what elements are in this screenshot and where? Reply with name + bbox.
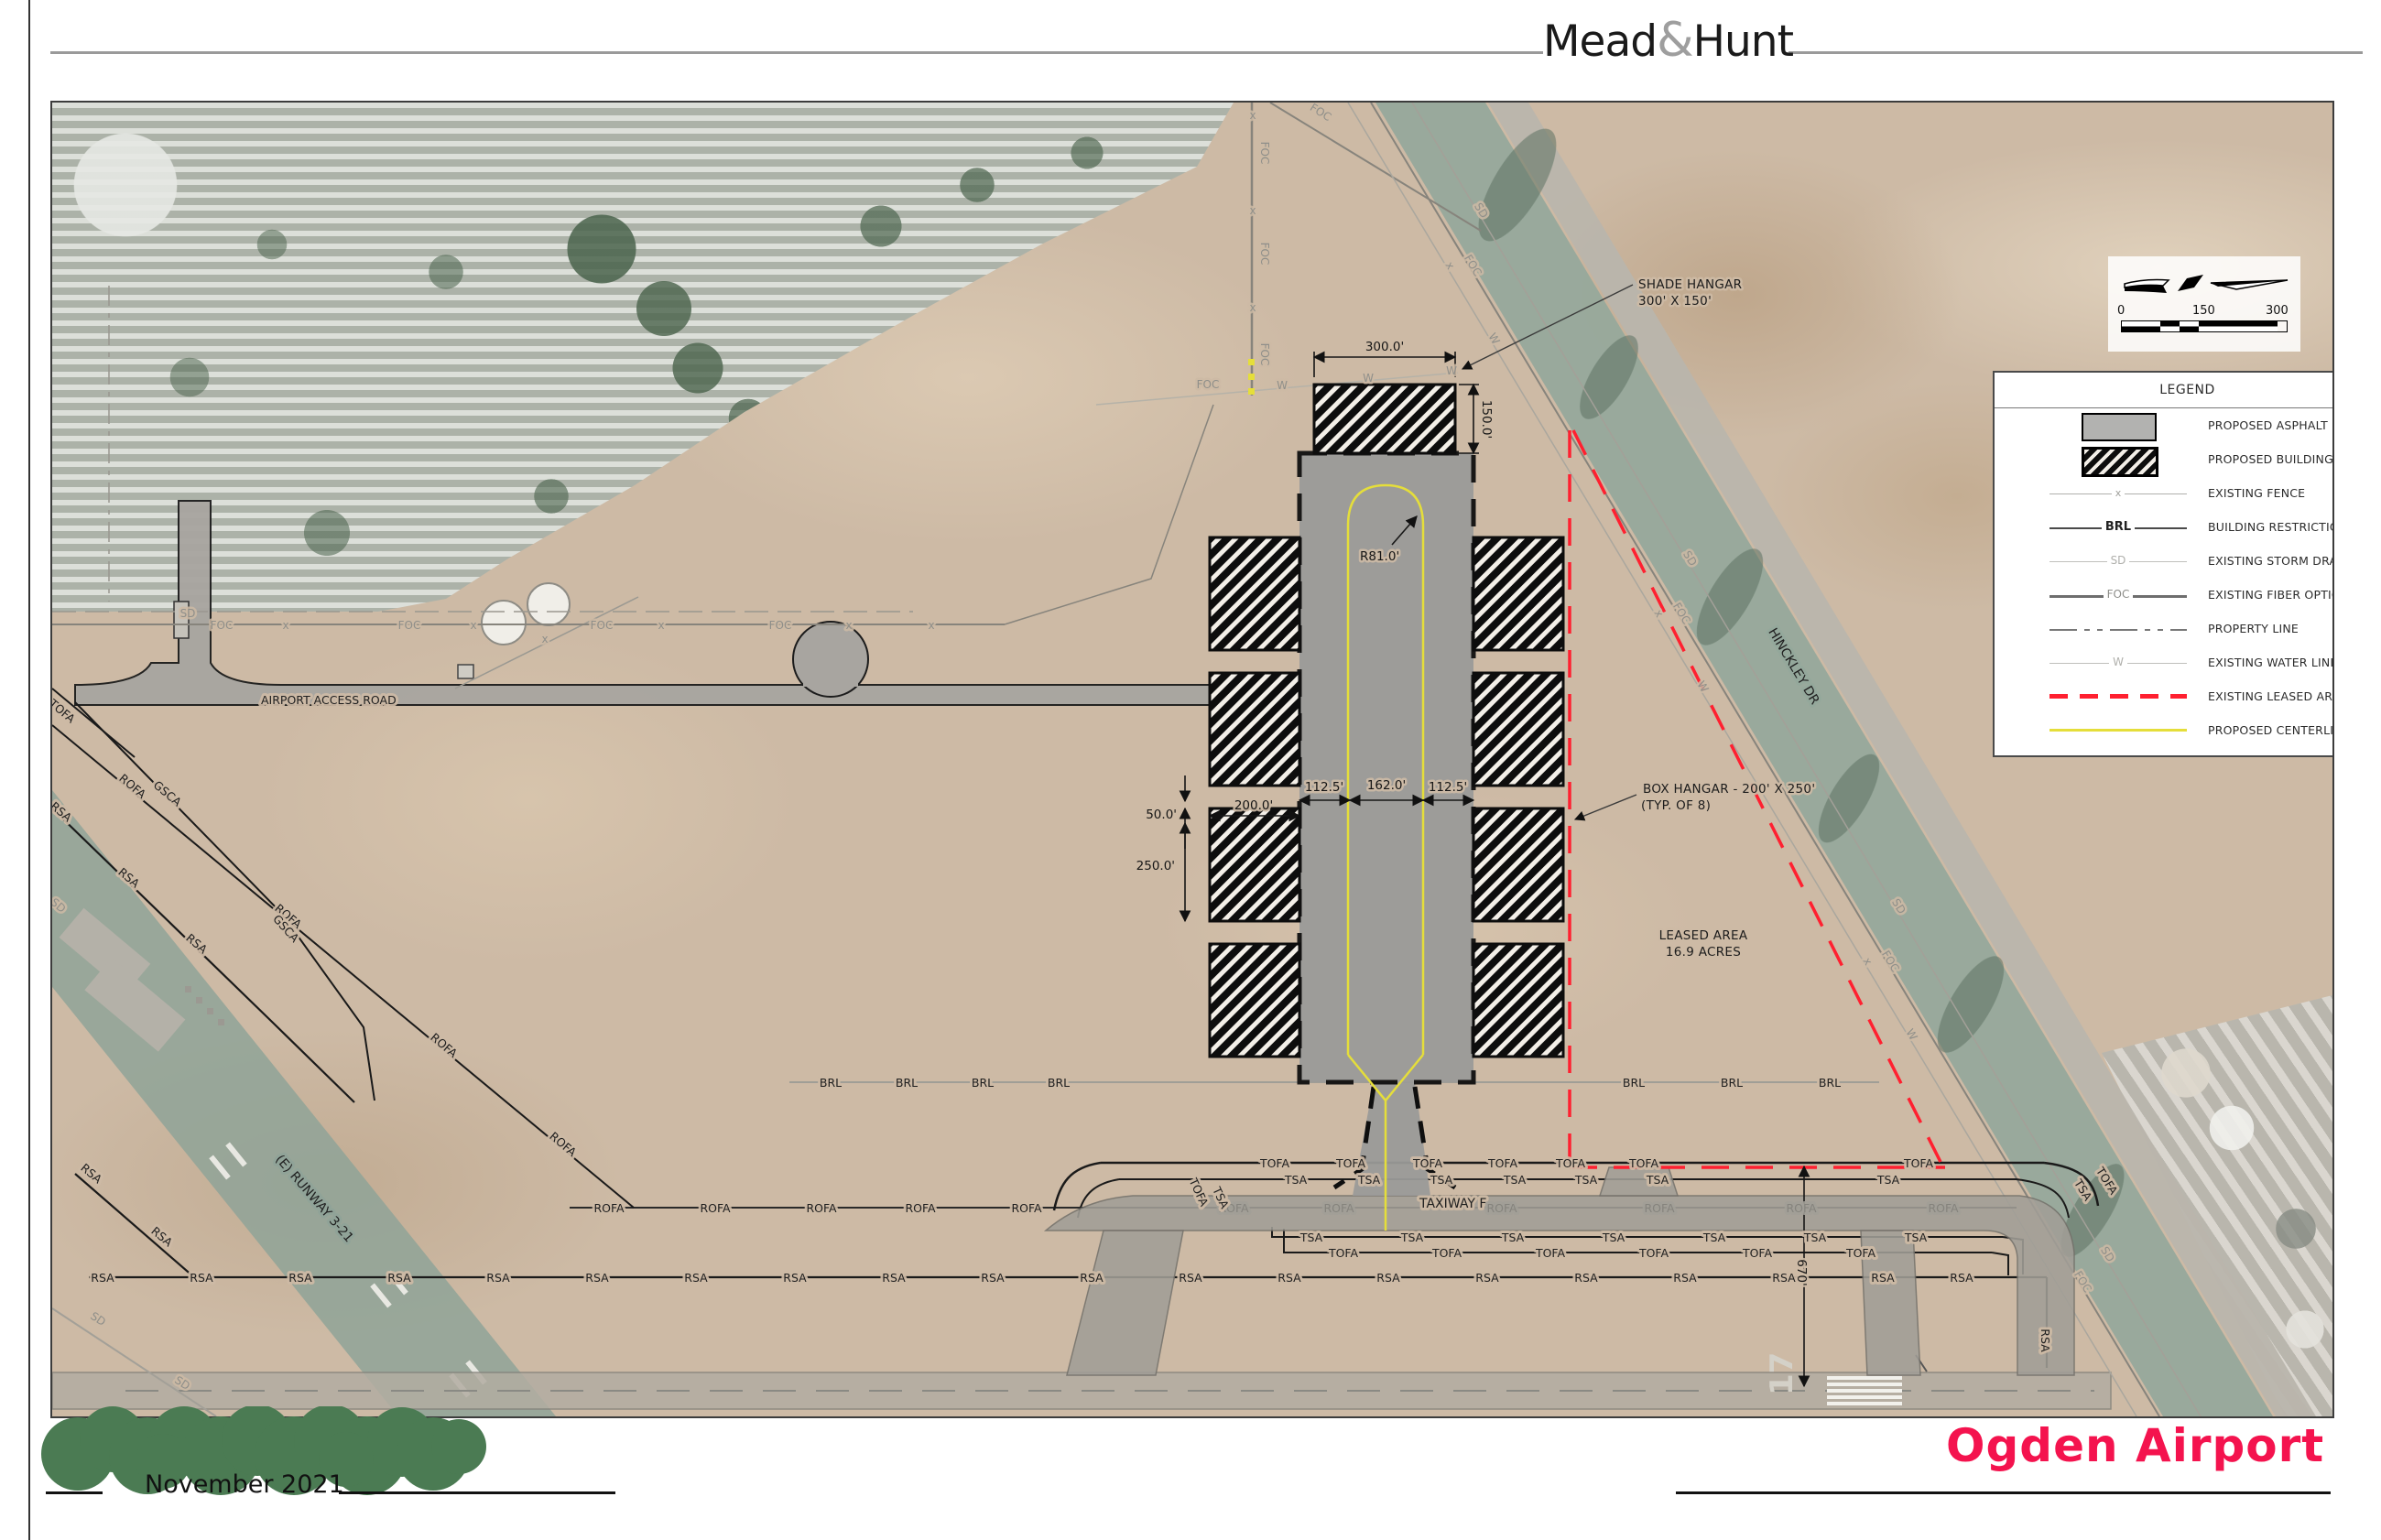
line-label-rofa: ROFA: [116, 771, 148, 801]
line-label-x: x: [1443, 259, 1458, 271]
line-label-w: W: [1485, 331, 1502, 346]
line-label-rsa: RSA: [288, 1271, 312, 1285]
line-label-rsa: RSA: [190, 1271, 213, 1285]
scale-bar: [2121, 320, 2288, 332]
line-label-rsa: RSA: [91, 1271, 114, 1285]
legend-item-label: EXISTING FENCE: [2208, 476, 2305, 510]
line-label-foc: FOC: [1258, 343, 1271, 366]
leased-area-label: LEASED AREA 16.9 ACRES: [1659, 928, 1748, 960]
line-label-tofa: TOFA: [1555, 1156, 1586, 1170]
line-label-rsa: RSA: [1179, 1271, 1202, 1285]
centerline-marking-line: [2049, 713, 2187, 747]
legend-item-label: PROPOSED CENTERLINE MARKING: [2208, 713, 2334, 747]
line-label-rofa: ROFA: [806, 1201, 837, 1215]
svg-text:300' X 150': 300' X 150': [1638, 294, 1712, 309]
legend-item-label: EXISTING STORM DRAIN: [2208, 544, 2334, 578]
line-label-rofa: ROFA: [1786, 1201, 1817, 1215]
apron-proposed-asphalt: [1299, 453, 1473, 1082]
scale-0: 0: [2117, 304, 2125, 318]
footer-rule-left: [46, 1491, 103, 1494]
svg-text:SHADE HANGAR: SHADE HANGAR: [1638, 277, 1742, 292]
line-label-tofa: TOFA: [1259, 1156, 1290, 1170]
runway-17-number: 17: [1764, 1352, 1800, 1395]
line-label-x: x: [470, 619, 476, 632]
legend-title: LEGEND: [1995, 373, 2334, 408]
line-label-x: x: [1249, 204, 1256, 217]
legend-item-label: EXISTING WATER LINE: [2208, 645, 2334, 679]
line-label-rsa: RSA: [882, 1271, 906, 1285]
plan-linework: 17 AIRPORT ACCESS ROAD: [52, 103, 2332, 1416]
line-label-tofa: TOFA: [1328, 1246, 1359, 1260]
line-label-rofa: ROFA: [1486, 1201, 1517, 1215]
brand-ampersand: &: [1657, 13, 1693, 68]
line-label-rsa: RSA: [148, 1224, 175, 1250]
line-label-tsa: TSA: [1400, 1231, 1424, 1244]
line-label-brl: BRL: [1819, 1076, 1841, 1090]
brand-right: Hunt: [1693, 16, 1793, 67]
line-label-x: x: [282, 619, 288, 632]
legend-item-label: EXISTING FIBER OPTIC CABLE: [2208, 578, 2334, 612]
dim-hangar-width: 200.0': [1234, 798, 1273, 813]
proposed-asphalt-swatch: [2049, 408, 2187, 442]
line-label-w: W: [1277, 379, 1288, 392]
taxiway-f-pavement: [1046, 1196, 2074, 1375]
legend-item-water: W EXISTING WATER LINE: [1995, 645, 2334, 679]
line-label-rofa: ROFA: [1011, 1201, 1042, 1215]
client-logo-green: [35, 1406, 548, 1516]
line-label-tsa: TSA: [1646, 1173, 1669, 1187]
north-arrow-icon: [2108, 258, 2300, 304]
svg-text:BOX HANGAR - 200' X 250': BOX HANGAR - 200' X 250': [1643, 782, 1815, 797]
sheet-border-line: [28, 0, 30, 1540]
line-label-tofa: TOFA: [1903, 1156, 1934, 1170]
small-structure: [458, 665, 473, 678]
line-label-w: W: [1903, 1026, 1919, 1042]
line-label-rsa: RSA: [981, 1271, 1005, 1285]
line-label-tofa: TOFA: [1742, 1246, 1773, 1260]
line-label-tsa: TSA: [1357, 1173, 1381, 1187]
line-label-rofa: ROFA: [1928, 1201, 1959, 1215]
line-label-tsa: TSA: [1702, 1231, 1726, 1244]
dim-shade-depth: 150.0': [1479, 400, 1494, 439]
line-label-tsa: TSA: [1602, 1231, 1625, 1244]
footer-rule-right: [1676, 1491, 2331, 1494]
property-line: [2049, 612, 2187, 645]
line-label-foc: FOC: [1308, 103, 1333, 124]
line-label-tsa: TSA: [1803, 1231, 1827, 1244]
dim-hangar-depth: 250.0': [1136, 859, 1175, 873]
line-label-x: x: [541, 633, 548, 645]
leased-area-line: [2049, 679, 2187, 713]
plan-sheet: Mead&Hunt: [0, 0, 2381, 1540]
legend-item-label: PROPERTY LINE: [2208, 612, 2299, 645]
scale-300: 300: [2266, 304, 2289, 318]
line-label-tofa: TOFA: [1412, 1156, 1443, 1170]
svg-text:LEASED AREA: LEASED AREA: [1659, 928, 1748, 943]
line-label-rsa: RSA: [486, 1271, 510, 1285]
existing-fence-line: x: [2049, 476, 2187, 510]
svg-text:16.9 ACRES: 16.9 ACRES: [1666, 945, 1741, 960]
footer-rule-mid: [339, 1491, 615, 1494]
line-label-x: x: [928, 619, 934, 632]
header-rule: [50, 51, 2363, 54]
dim-shade-width: 300.0': [1365, 340, 1404, 354]
taxiway-f-label: TAXIWAY F: [1419, 1197, 1486, 1211]
svg-text:(TYP. OF 8): (TYP. OF 8): [1641, 798, 1711, 813]
legend-item-label: PROPOSED BUILDING: [2208, 442, 2333, 476]
legend-item-brl: BRL BUILDING RESTRICTION LINE (60'): [1995, 510, 2334, 544]
water-line: W: [2049, 645, 2187, 679]
line-label-foc: FOC: [1258, 243, 1271, 266]
legend-rows: PROPOSED ASPHALT PROPOSED BUILDINGx EXIS…: [1995, 408, 2334, 747]
line-label-rsa: RSA: [783, 1271, 807, 1285]
dim-apron-left: 112.5': [1305, 780, 1343, 795]
line-label-x: x: [1652, 607, 1667, 619]
line-label-rsa: RSA: [1772, 1271, 1796, 1285]
legend-item-asphalt: PROPOSED ASPHALT: [1995, 408, 2334, 442]
site-plan-map: 17 AIRPORT ACCESS ROAD: [50, 101, 2334, 1418]
line-label-x: x: [1861, 955, 1875, 967]
logo-blob-circle: [431, 1419, 486, 1474]
legend-item-fence: x EXISTING FENCE: [1995, 476, 2334, 510]
dim-runway-offset: 670': [1794, 1259, 1809, 1285]
line-label-w: W: [1363, 372, 1374, 385]
line-label-tofa: TOFA: [1487, 1156, 1518, 1170]
line-label-foc: FOC: [398, 619, 421, 632]
legend-item-foc: FOC EXISTING FIBER OPTIC CABLE: [1995, 578, 2334, 612]
line-label-brl: BRL: [1048, 1076, 1070, 1090]
line-label-w: W: [1694, 678, 1711, 694]
line-label-tsa: TSA: [1904, 1231, 1928, 1244]
line-label-rsa: RSA: [1871, 1271, 1895, 1285]
line-label-sd: SD: [88, 1309, 108, 1329]
line-label-brl: BRL: [820, 1076, 842, 1090]
line-label-tsa: TSA: [1299, 1231, 1323, 1244]
line-label-tsa: TSA: [1501, 1231, 1525, 1244]
line-label-tofa: TOFA: [1845, 1246, 1876, 1260]
line-label-foc: FOC: [211, 619, 234, 632]
line-label-tsa: TSA: [1430, 1173, 1453, 1187]
line-label-rofa: ROFA: [1644, 1201, 1675, 1215]
line-label-tofa: TOFA: [1431, 1246, 1462, 1260]
legend-item-leased: EXISTING LEASED AREA: [1995, 679, 2334, 713]
line-label-brl: BRL: [972, 1076, 994, 1090]
line-label-rsa: RSA: [387, 1271, 411, 1285]
legend-item-centerline: PROPOSED CENTERLINE MARKING: [1995, 713, 2334, 747]
legend-item-label: PROPOSED ASPHALT: [2208, 408, 2328, 442]
line-label-rsa: RSA: [585, 1271, 609, 1285]
line-label-x: x: [845, 619, 852, 632]
line-label-rsa: RSA: [1574, 1271, 1598, 1285]
dim-turn-radius: R81.0': [1360, 549, 1399, 564]
line-label-rsa: RSA: [1376, 1271, 1400, 1285]
legend-item-property: PROPERTY LINE: [1995, 612, 2334, 645]
line-label-gsca: GSCA: [151, 778, 185, 809]
fiber-optic-line: FOC: [2049, 578, 2187, 612]
line-label-tsa: TSA: [1503, 1173, 1527, 1187]
line-label-tofa: TOFA: [1535, 1246, 1566, 1260]
legend-item-label: BUILDING RESTRICTION LINE (60'): [2208, 510, 2334, 544]
proposed-building-swatch: [2049, 442, 2187, 476]
dim-hangar-gap: 50.0': [1146, 808, 1177, 822]
line-label-brl: BRL: [1721, 1076, 1743, 1090]
line-label-rsa: RSA: [1277, 1271, 1301, 1285]
brand-left: Mead: [1543, 16, 1657, 67]
line-label-sd: SD: [180, 607, 196, 620]
line-label-rsa: RSA: [78, 1161, 104, 1187]
scale-bar-block: 0 150 300: [2108, 256, 2300, 352]
line-label-rsa: RSA: [1475, 1271, 1499, 1285]
survey-markers: [1248, 359, 1255, 395]
line-label-tsa: TSA: [1574, 1173, 1598, 1187]
line-label-rsa: RSA: [183, 931, 210, 957]
shade-hangar-building: [1314, 385, 1455, 453]
line-label-foc: FOC: [1258, 142, 1271, 165]
mead-hunt-logo: Mead&Hunt: [1543, 13, 1788, 71]
scale-150: 150: [2192, 304, 2215, 318]
line-label-tofa: TOFA: [1335, 1156, 1366, 1170]
line-label-foc: FOC: [769, 619, 792, 632]
line-label-foc: FOC: [1197, 378, 1220, 391]
dim-apron-center: 162.0': [1367, 778, 1406, 793]
airport-access-road: AIRPORT ACCESS ROAD: [75, 501, 1226, 707]
line-label-rsa: RSA: [684, 1271, 708, 1285]
line-label-rofa: ROFA: [905, 1201, 936, 1215]
legend: LEGEND PROPOSED ASPHALT PROPOSED BUILDIN…: [1993, 371, 2334, 757]
legend-item-sd: SD EXISTING STORM DRAIN: [1995, 544, 2334, 578]
storm-drain-line: SD: [2049, 544, 2187, 578]
box-hangar-callout: BOX HANGAR - 200' X 250' (TYP. OF 8): [1575, 782, 1815, 819]
access-road-label: AIRPORT ACCESS ROAD: [261, 693, 397, 707]
brl-line: BRL: [2049, 510, 2187, 544]
line-label-brl: BRL: [1623, 1076, 1645, 1090]
line-label-rofa: ROFA: [1323, 1201, 1354, 1215]
line-label-w: W: [1446, 364, 1457, 377]
line-label-tsa: TSA: [1876, 1173, 1900, 1187]
project-title: Ogden Airport: [1946, 1419, 2331, 1472]
line-label-foc: FOC: [591, 619, 614, 632]
line-label-x: x: [658, 619, 664, 632]
line-label-rofa: ROFA: [700, 1201, 731, 1215]
line-label-rofa: ROFA: [593, 1201, 625, 1215]
scale-numbers: 0 150 300: [2108, 304, 2300, 319]
line-label-rsa: RSA: [2039, 1329, 2052, 1352]
line-label-rsa: RSA: [1673, 1271, 1697, 1285]
line-label-tofa: TOFA: [1638, 1246, 1669, 1260]
dim-apron-right: 112.5': [1429, 780, 1467, 795]
line-label-rsa: RSA: [1080, 1271, 1104, 1285]
plan-date: November 2021: [145, 1470, 344, 1499]
line-label-rofa: ROFA: [547, 1129, 579, 1159]
line-label-tsa: TSA: [1284, 1173, 1308, 1187]
line-label-x: x: [1249, 301, 1256, 314]
line-label-brl: BRL: [896, 1076, 918, 1090]
legend-item-label: EXISTING LEASED AREA: [2208, 679, 2334, 713]
line-label-rofa: ROFA: [428, 1030, 460, 1060]
line-label-x: x: [1249, 109, 1256, 122]
line-label-rsa: RSA: [1950, 1271, 1973, 1285]
legend-item-building: PROPOSED BUILDING: [1995, 442, 2334, 476]
line-label-tofa: TOFA: [1628, 1156, 1659, 1170]
